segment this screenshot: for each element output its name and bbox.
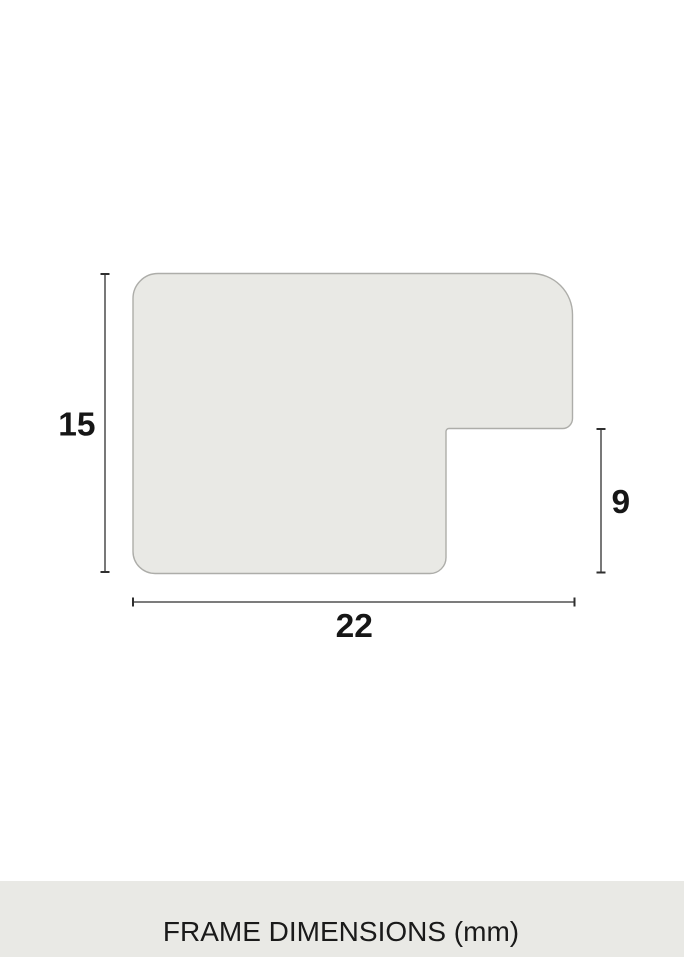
svg-text:22: 22 [336,608,373,645]
svg-text:FRAME DIMENSIONS (mm): FRAME DIMENSIONS (mm) [163,916,519,947]
svg-text:15: 15 [58,407,95,444]
svg-text:9: 9 [612,484,631,521]
